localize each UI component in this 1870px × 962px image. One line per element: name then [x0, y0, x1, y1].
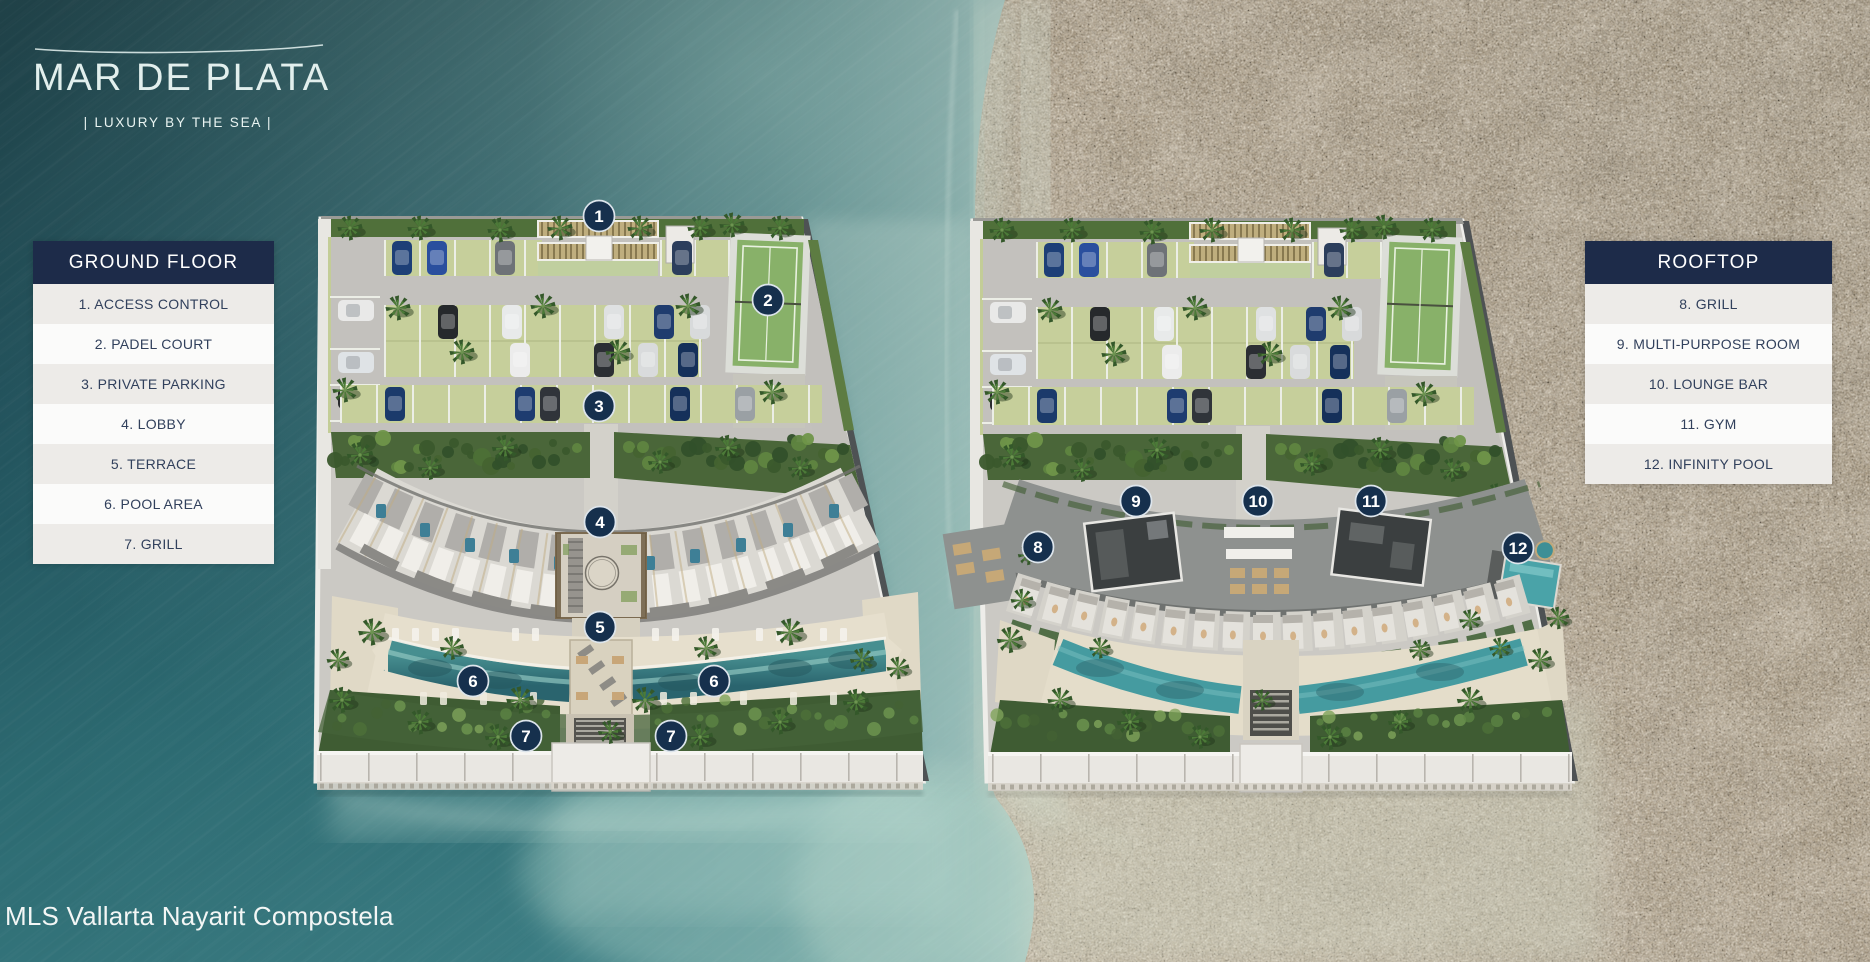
svg-text:5: 5	[595, 618, 604, 637]
svg-text:12: 12	[1509, 539, 1528, 558]
svg-text:9: 9	[1131, 492, 1140, 511]
svg-text:10: 10	[1249, 492, 1268, 511]
svg-text:4: 4	[595, 513, 605, 532]
svg-text:7: 7	[666, 727, 675, 746]
svg-text:8: 8	[1033, 538, 1042, 557]
svg-text:11: 11	[1362, 492, 1380, 511]
svg-text:6: 6	[468, 672, 477, 691]
svg-text:3: 3	[594, 397, 603, 416]
svg-text:1: 1	[594, 207, 603, 226]
svg-text:7: 7	[521, 727, 530, 746]
svg-text:6: 6	[709, 672, 718, 691]
svg-text:2: 2	[763, 291, 772, 310]
